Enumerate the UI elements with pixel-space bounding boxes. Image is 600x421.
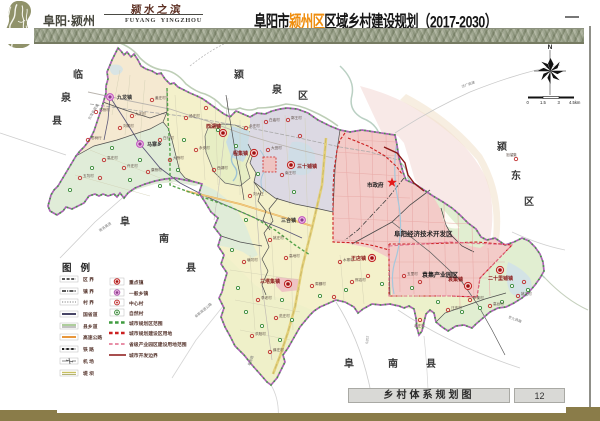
svg-text:一般乡镇: 一般乡镇 — [129, 290, 148, 297]
svg-text:区: 区 — [298, 90, 308, 102]
svg-text:九龙镇: 九龙镇 — [116, 94, 132, 101]
svg-text:汤庄村: 汤庄村 — [189, 113, 200, 118]
svg-text:郭王村: 郭王村 — [291, 115, 302, 120]
svg-text:五坑村: 五坑村 — [83, 173, 94, 178]
svg-text:姚庄村: 姚庄村 — [273, 235, 284, 240]
svg-text:康桥村: 康桥村 — [151, 167, 162, 172]
svg-text:堤 坝: 堤 坝 — [83, 370, 94, 377]
svg-text:铁 路: 铁 路 — [83, 346, 94, 353]
svg-text:区: 区 — [524, 196, 534, 208]
svg-text:枣树行: 枣树行 — [91, 135, 102, 140]
svg-text:姜庄村: 姜庄村 — [155, 95, 166, 100]
svg-text:高庄村: 高庄村 — [107, 155, 118, 160]
svg-text:泉: 泉 — [60, 91, 72, 104]
svg-text:S202: S202 — [365, 336, 370, 345]
svg-text:高地村: 高地村 — [289, 253, 300, 258]
svg-text:区 界: 区 界 — [83, 276, 94, 283]
svg-text:三合镇: 三合镇 — [281, 217, 296, 224]
svg-text:东: 东 — [511, 169, 521, 182]
svg-text:白庙村: 白庙村 — [269, 117, 280, 122]
svg-text:程集镇: 程集镇 — [232, 150, 248, 157]
svg-text:三塔集镇: 三塔集镇 — [260, 278, 280, 285]
svg-text:高速公路: 高速公路 — [83, 334, 102, 341]
svg-text:马寨乡: 马寨乡 — [147, 141, 162, 148]
svg-text:南王村: 南王村 — [285, 170, 296, 175]
svg-text:颍: 颍 — [233, 68, 244, 81]
svg-text:西湖村: 西湖村 — [217, 165, 228, 170]
svg-text:1.5: 1.5 — [540, 100, 546, 105]
svg-text:马桥村: 马桥村 — [99, 107, 110, 112]
svg-text:永安村: 永安村 — [199, 145, 210, 150]
svg-text:袁集产业园区: 袁集产业园区 — [421, 271, 458, 279]
svg-text:临: 临 — [73, 68, 83, 81]
svg-text:县: 县 — [52, 115, 62, 127]
svg-text:范庄村: 范庄村 — [279, 313, 290, 318]
svg-text:大田村: 大田村 — [271, 145, 282, 150]
svg-text:0: 0 — [527, 100, 530, 105]
svg-text:李老村: 李老村 — [261, 295, 272, 300]
svg-text:阜新高速公路: 阜新高速公路 — [193, 301, 213, 319]
svg-text:二十里铺镇: 二十里铺镇 — [488, 275, 513, 282]
svg-text:高台村: 高台村 — [493, 301, 504, 306]
svg-text:N: N — [548, 44, 553, 51]
svg-text:图例: 图例 — [62, 262, 99, 274]
svg-text:王店镇: 王店镇 — [351, 255, 366, 262]
svg-text:县乡道: 县乡道 — [83, 323, 98, 330]
svg-text:颍: 颍 — [496, 140, 507, 153]
svg-text:阜: 阜 — [120, 215, 130, 228]
svg-text:中心村: 中心村 — [129, 300, 144, 307]
svg-text:薛庄村: 薛庄村 — [273, 347, 284, 352]
svg-text:泉: 泉 — [271, 83, 283, 96]
svg-text:京九铁路: 京九铁路 — [508, 314, 523, 324]
svg-text:李集村: 李集村 — [473, 295, 484, 300]
svg-text:五里村: 五里村 — [407, 271, 418, 276]
svg-text:村 界: 村 界 — [83, 299, 94, 306]
svg-text:省级产业园区建设用地范围: 省级产业园区建设用地范围 — [128, 341, 187, 348]
svg-text:周棚村: 周棚村 — [315, 281, 326, 286]
svg-text:刘寨村: 刘寨村 — [123, 123, 134, 128]
svg-text:大王村: 大王村 — [135, 111, 146, 116]
svg-text:大桥村: 大桥村 — [173, 155, 184, 160]
svg-text:南: 南 — [159, 232, 169, 245]
svg-text:城市开发边界: 城市开发边界 — [129, 352, 158, 359]
svg-text:洄溜集: 洄溜集 — [506, 152, 517, 157]
svg-text:镇 界: 镇 界 — [83, 288, 94, 295]
svg-text:县: 县 — [426, 358, 436, 370]
svg-text:阜阳经济技术开发区: 阜阳经济技术开发区 — [394, 229, 453, 238]
svg-text:国省道: 国省道 — [83, 311, 98, 318]
svg-text:机 场: 机 场 — [83, 358, 94, 365]
svg-text:阜: 阜 — [344, 357, 354, 370]
svg-text:城市规划建设区用地: 城市规划建设区用地 — [129, 330, 172, 337]
svg-text:邢店村: 邢店村 — [355, 277, 366, 282]
svg-text:白行村: 白行村 — [163, 135, 174, 140]
svg-text:洪阳村: 洪阳村 — [255, 331, 266, 336]
svg-text:西湖镇: 西湖镇 — [206, 123, 221, 130]
svg-text:老庄村: 老庄村 — [414, 323, 425, 328]
svg-text:南洛高速: 南洛高速 — [98, 220, 113, 232]
svg-text:南: 南 — [388, 357, 398, 370]
svg-text:城市规划区范围: 城市规划区范围 — [129, 320, 163, 327]
svg-text:自然村: 自然村 — [129, 310, 144, 317]
svg-text:姚王村: 姚王村 — [521, 291, 532, 296]
svg-text:余庄村: 余庄村 — [249, 123, 260, 128]
svg-text:刘大庄: 刘大庄 — [253, 191, 264, 196]
svg-text:济广高速: 济广高速 — [461, 79, 476, 89]
svg-text:4.5km: 4.5km — [569, 100, 581, 105]
svg-text:县: 县 — [186, 262, 196, 274]
svg-text:3: 3 — [558, 100, 561, 105]
svg-text:许庄村: 许庄村 — [127, 163, 138, 168]
svg-text:塘坊村: 塘坊村 — [247, 257, 258, 262]
svg-text:市政府: 市政府 — [367, 181, 384, 189]
svg-text:汪庄村: 汪庄村 — [451, 305, 462, 310]
svg-text:重点镇: 重点镇 — [129, 279, 144, 286]
svg-text:三十铺镇: 三十铺镇 — [297, 163, 317, 170]
